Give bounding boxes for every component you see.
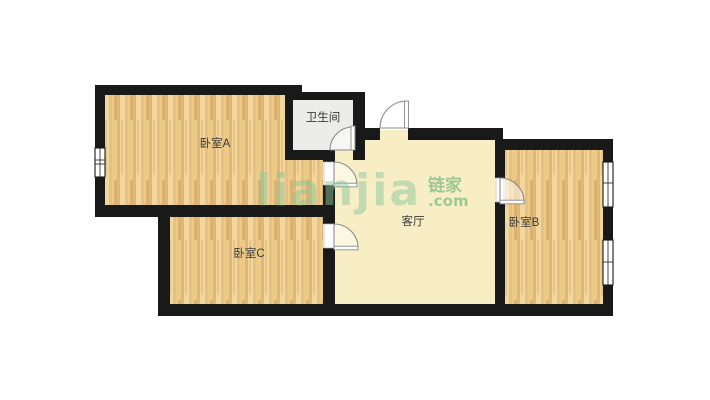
bottom-outer-wall bbox=[158, 304, 613, 316]
living-room-top-wall-right bbox=[408, 128, 503, 140]
bedroom-b-window-upper bbox=[603, 162, 613, 207]
bedroom-c-label: 卧室C bbox=[233, 246, 264, 260]
living-room-top-wall-left bbox=[353, 128, 380, 140]
floorplan-svg: 卧室A 卫生间 客厅 卧室B 卧室C bbox=[0, 0, 710, 400]
bedroom-a-label: 卧室A bbox=[200, 136, 231, 150]
bedroom-c-doorway bbox=[324, 224, 334, 248]
west-inner-wall-1 bbox=[323, 150, 335, 162]
bedroom-b-label: 卧室B bbox=[509, 215, 540, 229]
west-inner-wall-3 bbox=[323, 248, 335, 304]
bedroom-a-window bbox=[95, 148, 105, 177]
east-inner-wall-2 bbox=[495, 202, 505, 304]
bedroom-b-window-lower bbox=[603, 240, 613, 285]
bedroom-b-right-wall-2 bbox=[603, 207, 613, 240]
west-inner-wall-2 bbox=[323, 185, 335, 224]
bedroom-b-right-wall-1 bbox=[603, 142, 613, 162]
bedroom-a-doorway bbox=[324, 162, 334, 185]
bedroom-b-top-wall bbox=[495, 139, 613, 150]
bedroom-c-left-wall bbox=[158, 205, 170, 316]
bedroom-a-top-wall bbox=[95, 85, 302, 95]
bedroom-a-left-wall-upper bbox=[95, 85, 105, 148]
bedroom-b-right-wall-3 bbox=[603, 285, 613, 316]
entrance-doorway bbox=[380, 130, 408, 140]
floorplan-canvas: 卧室A 卫生间 客厅 卧室B 卧室C lianjia 链家 .com bbox=[0, 0, 710, 400]
east-inner-wall-1 bbox=[495, 150, 505, 178]
bathroom-doorway-gap bbox=[332, 150, 353, 160]
bathroom-label: 卫生间 bbox=[306, 110, 341, 124]
bedroom-a-bottom-wall bbox=[95, 205, 335, 217]
living-room-label: 客厅 bbox=[402, 214, 425, 228]
entrance-door bbox=[380, 101, 409, 128]
